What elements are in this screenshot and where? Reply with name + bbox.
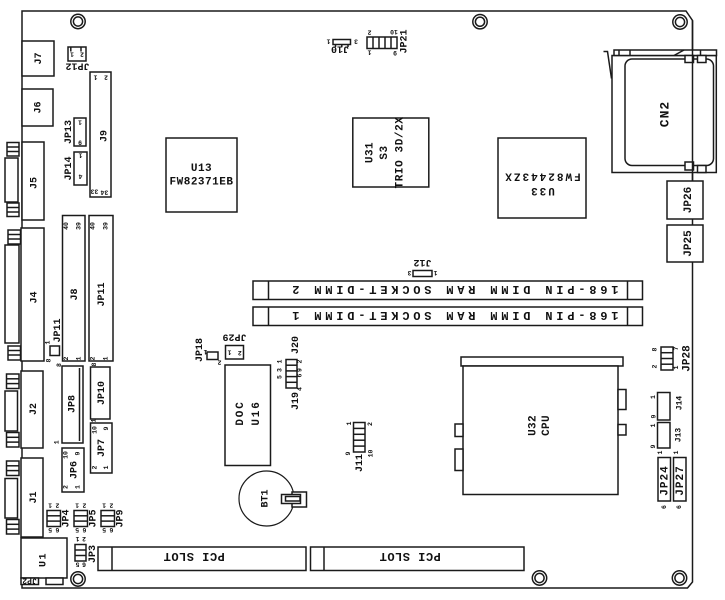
svg-text:40: 40 — [63, 222, 70, 230]
svg-text:3: 3 — [277, 368, 284, 372]
svg-text:2: 2 — [109, 502, 113, 509]
svg-text:1: 1 — [75, 502, 79, 509]
svg-text:1: 1 — [650, 395, 657, 399]
svg-text:2: 2 — [104, 74, 108, 81]
svg-text:8: 8 — [46, 358, 53, 362]
svg-text:10: 10 — [63, 451, 70, 459]
svg-text:9: 9 — [103, 426, 110, 430]
svg-text:JP27: JP27 — [675, 465, 687, 495]
svg-text:S3: S3 — [379, 145, 391, 159]
svg-text:JP12: JP12 — [65, 60, 89, 71]
svg-text:10: 10 — [368, 450, 375, 458]
svg-text:1: 1 — [75, 535, 79, 542]
svg-text:2: 2 — [367, 422, 374, 426]
svg-text:JP13: JP13 — [64, 120, 75, 144]
svg-text:JP9: JP9 — [116, 509, 127, 527]
svg-text:9: 9 — [75, 451, 82, 455]
svg-text:J2: J2 — [29, 403, 40, 415]
svg-text:JP8: JP8 — [68, 395, 79, 413]
svg-text:5: 5 — [277, 375, 284, 379]
svg-text:168-PIN DIMM RAM SOCKET-DIMM 2: 168-PIN DIMM RAM SOCKET-DIMM 2 — [288, 282, 618, 296]
svg-text:1: 1 — [203, 348, 207, 355]
svg-text:U1: U1 — [39, 552, 50, 567]
svg-text:1: 1 — [346, 421, 353, 425]
svg-text:1: 1 — [91, 418, 98, 422]
svg-text:5: 5 — [75, 526, 79, 533]
svg-text:39: 39 — [76, 222, 83, 230]
svg-text:J1: J1 — [29, 491, 40, 503]
svg-text:1: 1 — [78, 118, 82, 125]
svg-text:2: 2 — [82, 502, 86, 509]
svg-text:JP10: JP10 — [97, 381, 108, 405]
svg-text:JP28: JP28 — [682, 345, 694, 372]
svg-text:5: 5 — [102, 526, 106, 533]
svg-text:JP26: JP26 — [683, 187, 695, 213]
svg-text:10: 10 — [390, 28, 398, 35]
svg-text:J19: J19 — [291, 392, 302, 410]
svg-text:J4: J4 — [30, 291, 41, 303]
svg-text:2: 2 — [217, 358, 221, 365]
svg-text:8: 8 — [56, 363, 63, 367]
svg-text:1: 1 — [673, 450, 680, 454]
svg-text:BT1: BT1 — [261, 489, 272, 507]
svg-text:1: 1 — [433, 269, 437, 276]
svg-text:39: 39 — [103, 222, 110, 230]
svg-text:1: 1 — [102, 502, 106, 509]
svg-text:J10: J10 — [331, 42, 349, 53]
svg-text:8: 8 — [652, 347, 659, 351]
svg-text:6: 6 — [82, 526, 86, 533]
svg-text:2: 2 — [55, 502, 59, 509]
svg-text:1: 1 — [78, 151, 82, 158]
svg-text:2: 2 — [367, 29, 371, 36]
svg-text:JP21: JP21 — [400, 29, 411, 53]
svg-text:1: 1 — [53, 440, 60, 444]
svg-text:1: 1 — [277, 359, 284, 363]
svg-text:JP6: JP6 — [70, 461, 81, 479]
svg-text:U31: U31 — [365, 142, 377, 163]
svg-text:9: 9 — [650, 444, 657, 448]
svg-text:FW82371EB: FW82371EB — [170, 177, 234, 189]
svg-text:J13: J13 — [675, 428, 684, 443]
svg-text:6: 6 — [676, 505, 683, 509]
svg-text:JP7: JP7 — [97, 439, 108, 457]
svg-text:1: 1 — [45, 340, 52, 344]
svg-text:1: 1 — [48, 502, 52, 509]
svg-text:4: 4 — [78, 173, 82, 180]
svg-text:1: 1 — [673, 365, 680, 369]
svg-text:6: 6 — [82, 561, 86, 568]
svg-text:JP25: JP25 — [683, 230, 695, 257]
svg-text:1: 1 — [657, 450, 664, 454]
svg-text:JP2: JP2 — [22, 576, 37, 585]
svg-text:J11: J11 — [355, 454, 366, 472]
svg-text:1: 1 — [326, 37, 330, 44]
svg-text:40: 40 — [90, 222, 97, 230]
svg-text:9: 9 — [78, 138, 82, 145]
svg-text:1: 1 — [367, 49, 371, 56]
svg-text:9: 9 — [393, 49, 397, 56]
svg-text:J7: J7 — [34, 52, 45, 64]
svg-text:6: 6 — [55, 526, 59, 533]
svg-text:1: 1 — [75, 485, 82, 489]
svg-text:2: 2 — [82, 535, 86, 542]
svg-text:TRIO 3D/2X: TRIO 3D/2X — [395, 116, 407, 188]
svg-text:1: 1 — [76, 356, 83, 360]
svg-text:34: 34 — [101, 189, 109, 196]
svg-text:2: 2 — [80, 51, 84, 58]
svg-text:1: 1 — [93, 74, 97, 81]
svg-text:7: 7 — [673, 346, 680, 350]
svg-text:JP11: JP11 — [97, 282, 108, 306]
svg-text:U33: U33 — [529, 184, 555, 196]
svg-text:J20: J20 — [291, 336, 302, 354]
svg-text:6: 6 — [661, 505, 668, 509]
svg-text:U16: U16 — [251, 400, 263, 425]
svg-text:2: 2 — [90, 356, 97, 360]
svg-text:1: 1 — [70, 51, 74, 58]
svg-text:DOC: DOC — [235, 400, 247, 425]
svg-text:J8: J8 — [70, 288, 81, 300]
svg-text:6: 6 — [109, 526, 113, 533]
svg-text:CN2: CN2 — [658, 101, 673, 127]
svg-text:4: 4 — [297, 387, 304, 391]
svg-text:8: 8 — [91, 362, 98, 366]
svg-text:9: 9 — [345, 451, 352, 455]
svg-text:1: 1 — [103, 356, 110, 360]
svg-text:168-PIN DIMM RAM SOCKET-DIMM 1: 168-PIN DIMM RAM SOCKET-DIMM 1 — [288, 308, 618, 322]
svg-text:2: 2 — [297, 359, 304, 363]
svg-text:JP11: JP11 — [53, 318, 64, 342]
svg-text:PCI SLOT: PCI SLOT — [379, 549, 441, 563]
svg-text:1: 1 — [650, 423, 657, 427]
svg-text:9: 9 — [651, 414, 658, 418]
svg-text:J5: J5 — [30, 177, 41, 189]
svg-text:3: 3 — [407, 269, 411, 276]
svg-text:J14: J14 — [676, 396, 685, 411]
svg-text:2: 2 — [63, 485, 70, 489]
svg-text:J9: J9 — [100, 130, 111, 142]
svg-text:6: 6 — [297, 373, 304, 377]
svg-text:2: 2 — [238, 349, 242, 356]
svg-text:JP24: JP24 — [660, 465, 672, 495]
svg-text:PCI SLOT: PCI SLOT — [163, 549, 225, 563]
svg-text:JP5: JP5 — [89, 509, 100, 527]
svg-text:3: 3 — [354, 38, 358, 45]
svg-text:U13: U13 — [191, 163, 212, 175]
svg-text:JP29: JP29 — [222, 330, 246, 341]
svg-text:2: 2 — [92, 465, 99, 469]
svg-text:2: 2 — [63, 356, 70, 360]
svg-text:5: 5 — [75, 561, 79, 568]
svg-text:FW82443ZX: FW82443ZX — [503, 169, 580, 181]
svg-text:2: 2 — [652, 364, 659, 368]
svg-text:JP4: JP4 — [62, 509, 73, 527]
svg-text:1: 1 — [227, 349, 231, 356]
svg-text:5: 5 — [48, 526, 52, 533]
svg-text:CPU: CPU — [541, 415, 553, 436]
svg-text:33: 33 — [91, 188, 99, 195]
svg-text:JP14: JP14 — [64, 156, 75, 180]
svg-text:U32: U32 — [528, 415, 540, 436]
svg-text:10: 10 — [92, 426, 99, 434]
svg-text:J12: J12 — [413, 256, 431, 267]
svg-text:9: 9 — [297, 368, 304, 372]
svg-text:J6: J6 — [34, 101, 45, 113]
svg-text:1: 1 — [103, 465, 110, 469]
